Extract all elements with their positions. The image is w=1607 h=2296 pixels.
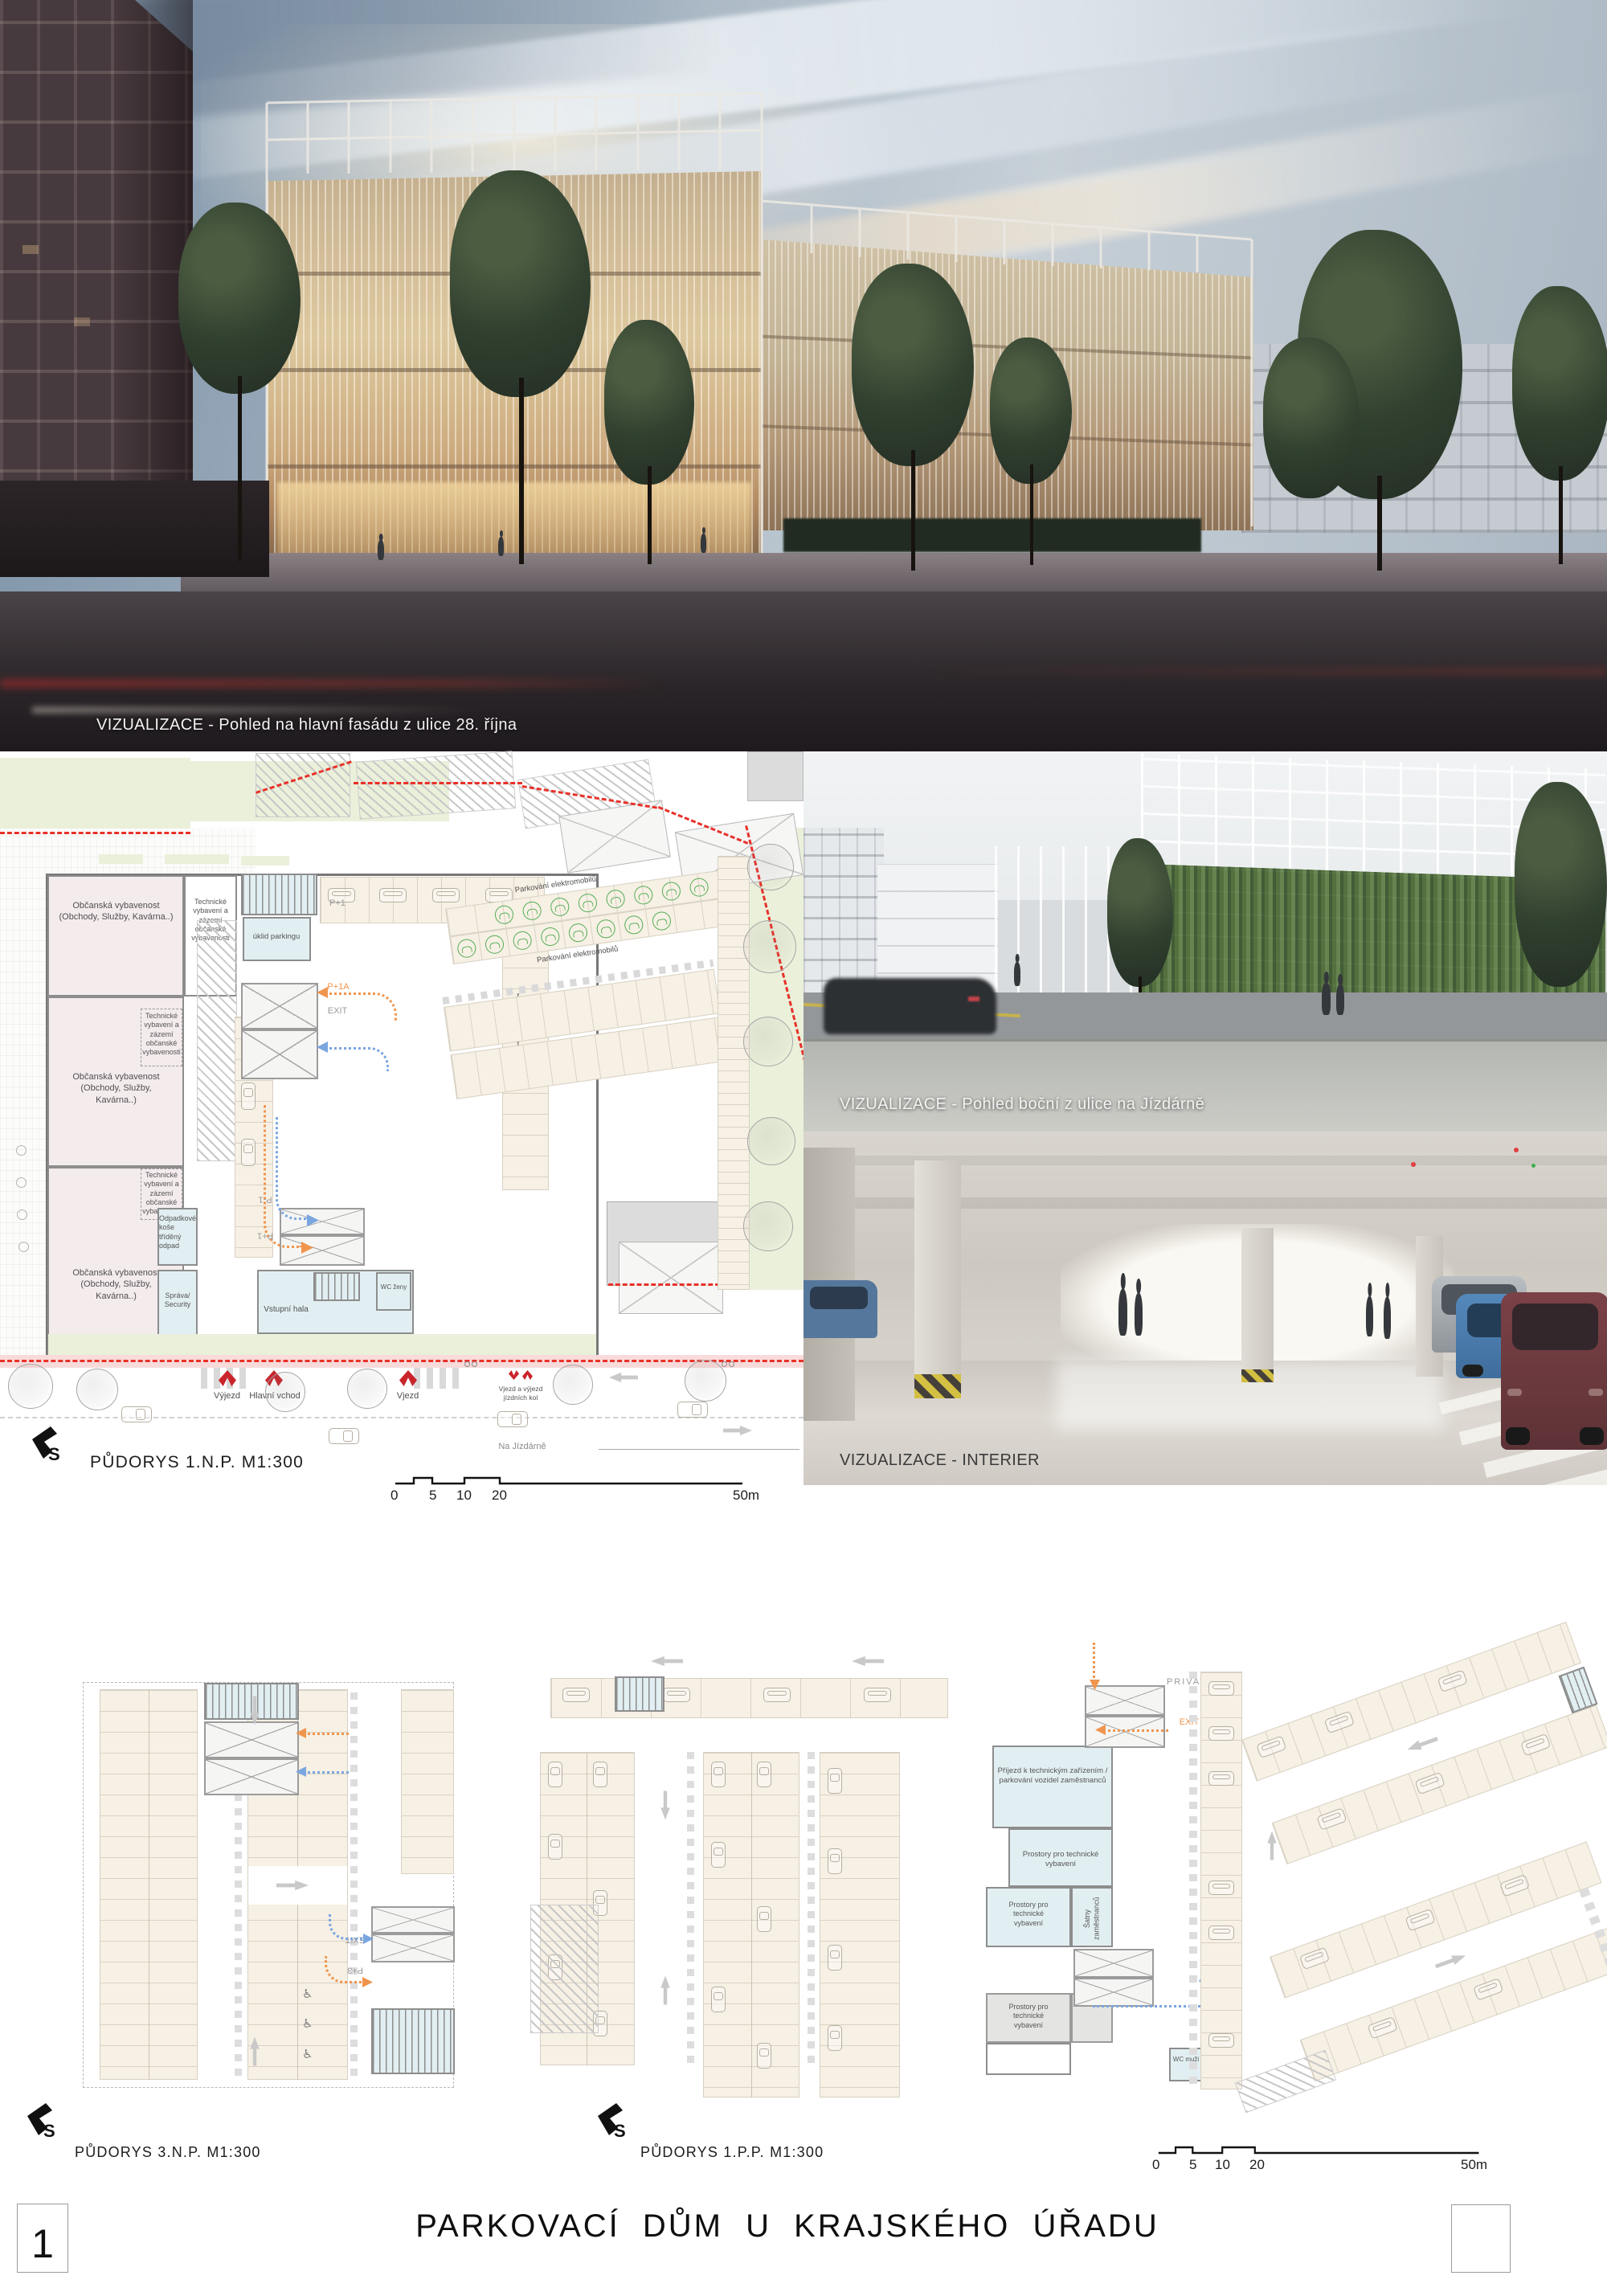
room-label: Příjezd k technickým zařízením / parková… [996, 1766, 1109, 1786]
north-letter: S [43, 2121, 55, 2138]
service-room [986, 2043, 1071, 2075]
stair-core [615, 1676, 664, 1712]
car-maroon-suv [1501, 1292, 1607, 1450]
lit-window [22, 245, 39, 254]
car-icon [1208, 1881, 1234, 1895]
column [1241, 1228, 1274, 1382]
room-label: Odpadkové koše tříděný odpad [159, 1214, 196, 1250]
planter [99, 854, 143, 864]
car-icon [1208, 1681, 1234, 1696]
tree-trunk [1030, 465, 1033, 565]
street-name: Na Jízdárně [482, 1441, 562, 1452]
car-icon [864, 1688, 891, 1702]
room-label: Občanská vybavenost (Obchody, Služby, Ka… [66, 1267, 166, 1302]
bicycle-icon [722, 1357, 734, 1371]
car-taillight [1589, 1389, 1603, 1396]
footer: 1 PARKOVACÍ DŮM U KRAJSKÉHO ÚŘADU [0, 2202, 1607, 2296]
tree-trunk [648, 466, 652, 564]
room-label: WC muži [1170, 2056, 1202, 2064]
scale-tick: 50m [1461, 2157, 1487, 2173]
person-silhouette [378, 540, 384, 560]
route-orange [264, 1105, 302, 1248]
room-label: Šatny zaměstnanců [1083, 1890, 1102, 1946]
tree-trunk [1559, 466, 1563, 564]
ceiling-light-red [1514, 1148, 1519, 1152]
room-label: Občanská vybavenost (Obchody, Služby, Ka… [58, 900, 174, 923]
person-silhouette [1014, 962, 1020, 986]
parking-stalls [401, 1689, 454, 1874]
person-silhouette [1322, 983, 1331, 1015]
scale-bar [394, 1473, 747, 1486]
car-icon [1208, 1926, 1234, 1940]
crosswalk [350, 1692, 358, 2077]
interior-visualization-caption: VIZUALIZACE - INTERIER [840, 1451, 1040, 1470]
front-wall [0, 481, 269, 577]
leader-line [599, 1449, 799, 1450]
scale-tick: 20 [1249, 2157, 1265, 2173]
car-icon [1208, 2033, 1234, 2048]
car-icon [593, 1762, 607, 1787]
column-base-stripe [914, 1374, 961, 1398]
direction-arrow-icon [660, 1791, 671, 1820]
plaza [181, 553, 1607, 595]
car-icon [329, 1428, 359, 1444]
direction-arrow-icon [609, 1372, 638, 1383]
ramp-label: EXIT [320, 1005, 355, 1017]
scale-tick: 10 [456, 1488, 472, 1504]
person-silhouette [1336, 984, 1344, 1015]
existing-building [356, 751, 517, 819]
tree-icon [450, 170, 591, 397]
light-trail-red [924, 669, 1607, 674]
site-boundary [354, 782, 522, 784]
tree-icon [76, 1369, 118, 1410]
stall-divider [149, 1689, 149, 2080]
tree-icon [1515, 782, 1607, 987]
north-arrow-icon: S [29, 1425, 64, 1462]
north-arrow-icon: S [24, 2102, 59, 2138]
scale-tick: 5 [429, 1488, 436, 1504]
main-visualization: VIZUALIZACE - Pohled na hlavní fasádu z … [0, 0, 1607, 751]
plan-title: PŮDORYS 3.N.P. M1:300 [75, 2144, 261, 2161]
lawn [0, 758, 190, 836]
tech-access-room [992, 1746, 1113, 1828]
ramp [371, 1934, 455, 1962]
car-icon [241, 1083, 256, 1110]
car-icon [497, 1411, 528, 1427]
direction-arrow-icon [1433, 1950, 1467, 1972]
scale-tick: 5 [1189, 2157, 1196, 2173]
car-icon [1208, 1726, 1234, 1741]
tree-icon [743, 1201, 793, 1251]
light-trail-red [0, 680, 667, 687]
bottom-plans: ♿ ♿ ♿ EXIT P+3 [0, 1631, 1607, 2202]
bike-arrow-icon [522, 1370, 533, 1380]
car-icon [677, 1402, 708, 1418]
tree-icon [990, 338, 1072, 484]
ramp [204, 1758, 299, 1795]
interior-visualization: VIZUALIZACE - INTERIER [803, 1132, 1607, 1485]
tree-icon [1107, 838, 1173, 987]
curb-line [803, 1039, 1607, 1042]
north-letter: S [48, 1444, 60, 1462]
ramp [1073, 1978, 1154, 2007]
car-icon [828, 2025, 842, 2051]
plan-title: PŮDORYS 1.P.P. M1:300 [640, 2144, 824, 2161]
main-visualization-caption: VIZUALIZACE - Pohled na hlavní fasádu z … [96, 716, 517, 735]
car-icon [379, 888, 407, 902]
car-icon [711, 1987, 726, 2012]
car-window [1512, 1304, 1598, 1350]
car-icon [711, 1762, 726, 1787]
room-label: Prostory pro technické vybavení [999, 2003, 1058, 2030]
room-label: WC ženy [377, 1283, 411, 1291]
dropoff-zone [197, 920, 237, 1161]
hedge [783, 518, 1201, 552]
route-blue [302, 1771, 349, 1774]
tree-icon [743, 920, 796, 973]
tree-icon [265, 1372, 305, 1412]
structural-frame [241, 72, 1286, 571]
site-boundary [608, 1283, 727, 1286]
board-title: PARKOVACÍ DŮM U KRAJSKÉHO ÚŘADU [0, 2208, 1575, 2245]
person-silhouette [701, 534, 706, 553]
site-boundary [0, 832, 190, 834]
route-blue [1093, 2005, 1205, 2008]
person-silhouette [1135, 1293, 1143, 1336]
ramp-label: P+1A [320, 981, 357, 992]
ramp-label: P+1 [251, 1230, 280, 1241]
tree-icon [553, 1365, 593, 1405]
route-orange-arrow [362, 1977, 373, 1987]
accessible-icon: ♿ [302, 2048, 313, 2061]
ramp [204, 1721, 299, 1758]
car-icon [757, 1762, 771, 1787]
wc-women [376, 1272, 411, 1311]
tree-trunk [238, 376, 242, 561]
tree-trunk [1377, 476, 1382, 571]
car-icon [663, 1688, 690, 1702]
ramp [241, 983, 318, 1029]
existing-roof [619, 1242, 723, 1314]
sidewalk [803, 1041, 1607, 1132]
car-icon [711, 1842, 726, 1868]
wc-men [1169, 2048, 1203, 2081]
room-label: úklid parkingu [243, 932, 309, 942]
room-label: Technické vybavení a zázemí občanské vyb… [141, 1012, 182, 1057]
existing-building [256, 753, 350, 817]
column [914, 1160, 961, 1398]
scale-tick: 0 [1152, 2157, 1159, 2173]
scale-tick: 10 [1215, 2157, 1230, 2173]
side-visualization: VIZUALIZACE - Pohled boční z ulice na Jí… [803, 751, 1607, 1132]
scale-tick: 20 [492, 1488, 507, 1504]
scale-tick: 50m [733, 1488, 759, 1504]
scale-tick: 0 [391, 1488, 398, 1504]
tree-icon [852, 264, 974, 466]
retail-room [47, 875, 184, 997]
car-blurred [824, 978, 996, 1034]
plan-3np: ♿ ♿ ♿ EXIT P+3 [83, 1682, 454, 2088]
tree-icon [747, 844, 794, 890]
car-icon [763, 1688, 791, 1702]
entry-label: Vjezd a výjezd jízdních kol [489, 1385, 553, 1402]
car-icon [562, 1688, 590, 1702]
stall-divider [751, 1752, 752, 2098]
direction-arrow-icon [1405, 1733, 1439, 1755]
direction-arrow-icon [651, 1655, 683, 1667]
ramp [1085, 1685, 1165, 1716]
scale-bar [1157, 2143, 1483, 2155]
tree-trunk [519, 378, 524, 564]
route-blue [325, 1047, 389, 1071]
tree-icon [8, 1364, 53, 1409]
direction-arrow-icon [723, 1425, 752, 1436]
route-orange [1102, 1729, 1168, 1733]
car-window [810, 1287, 868, 1309]
car-wheel [1506, 1427, 1530, 1445]
presentation-board: VIZUALIZACE - Pohled na hlavní fasádu z … [0, 0, 1607, 2296]
tree-icon [347, 1369, 387, 1409]
tree-trunk [911, 450, 915, 571]
tree-icon [685, 1360, 726, 1402]
bike-arrow-icon [509, 1370, 519, 1380]
car-wheel [1580, 1427, 1604, 1445]
accessible-icon: ♿ [302, 1988, 313, 2000]
ramp-label: P-1 [251, 1193, 280, 1205]
person-silhouette [1366, 1296, 1373, 1336]
north-letter: S [614, 2121, 626, 2138]
route-orange [1093, 1643, 1096, 1678]
ramp [1073, 1949, 1154, 1978]
person-silhouette [1384, 1297, 1391, 1339]
car-icon [548, 1834, 562, 1860]
ramp-label: P+1 [321, 898, 354, 909]
direction-arrow-icon [852, 1655, 884, 1667]
car-icon [548, 1762, 562, 1787]
planter [241, 856, 289, 866]
accessible-icon: ♿ [302, 2018, 313, 2030]
car-wheel [1462, 1365, 1483, 1377]
north-arrow-icon: S [595, 2102, 630, 2138]
existing-building [747, 751, 803, 801]
car-icon [121, 1406, 152, 1422]
tree-icon [1263, 338, 1360, 498]
car-taillight [968, 997, 979, 1001]
car-icon [828, 1848, 842, 1874]
cafe-table-icon [16, 1177, 27, 1188]
room-label: Správa/ Security [159, 1291, 196, 1310]
crosswalk [808, 1752, 815, 2065]
car-icon [757, 2043, 771, 2069]
plan-title: PŮDORYS 1.N.P. M1:300 [90, 1453, 304, 1472]
car-blue-left [803, 1280, 877, 1338]
stair-core [371, 2008, 455, 2074]
route-orange [302, 1733, 349, 1736]
column-base-stripe [1241, 1369, 1274, 1382]
bicycle-icon [464, 1357, 477, 1371]
plan-1np: Občanská vybavenost (Obchody, Služby, Ka… [0, 751, 803, 1655]
car-icon [757, 1906, 771, 1932]
car-taillight [1507, 1389, 1522, 1396]
ramp [241, 1029, 318, 1079]
room-label: Prostory pro technické vybavení [1012, 1850, 1109, 1869]
person-silhouette [498, 537, 504, 556]
cafe-table-icon [18, 1242, 29, 1252]
car-icon [828, 1945, 842, 1971]
car-icon [241, 1139, 256, 1166]
tree-icon [743, 1017, 793, 1066]
ramp [371, 1906, 455, 1934]
ceiling-light-red [1411, 1162, 1416, 1167]
crosswalk [414, 1368, 460, 1389]
room-label: Vstupní hala [259, 1304, 313, 1315]
crosswalk [1189, 1672, 1197, 2089]
stair-core [241, 874, 317, 915]
stair-core [313, 1272, 360, 1301]
lawn-strip [48, 1334, 596, 1355]
ceiling-light-green [1531, 1164, 1535, 1168]
cycle-lane-line [0, 1360, 803, 1362]
car-icon [1208, 1771, 1234, 1786]
plan-1pp: Příjezd k technickým zařízením / parková… [530, 1639, 1607, 2106]
tree-icon [604, 320, 694, 485]
cafe-table-icon [16, 1145, 27, 1156]
light-trail-white [32, 707, 482, 713]
lit-window [74, 317, 90, 326]
side-visualization-caption: VIZUALIZACE - Pohled boční z ulice na Jí… [840, 1095, 1204, 1114]
cafe-table-icon [17, 1209, 27, 1220]
car-icon [828, 1768, 842, 1794]
excavation-hatch [530, 1905, 599, 2033]
tree-icon [1512, 286, 1607, 481]
room-label: Prostory pro technické vybavení [999, 1901, 1058, 1928]
entry-label: Vjezd [386, 1390, 430, 1402]
room-label: Občanská vybavenost (Obchody, Služby, Ka… [66, 1071, 166, 1106]
tree-icon [747, 1117, 795, 1165]
planter [165, 854, 229, 864]
tree-icon [178, 203, 301, 394]
crosswalk [687, 1752, 694, 2065]
walkway-hatch [1235, 2050, 1336, 2114]
stamp-box [1451, 2204, 1511, 2273]
direction-arrow-icon [660, 1976, 671, 2005]
person-silhouette [1118, 1289, 1127, 1336]
